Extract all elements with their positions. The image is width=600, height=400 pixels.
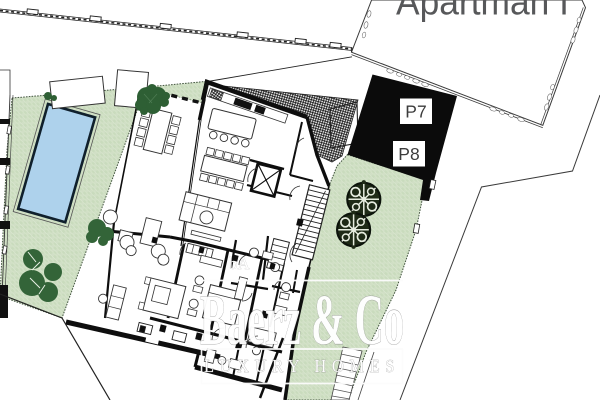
svg-text:P8: P8: [398, 144, 419, 164]
svg-text:bA: bA: [229, 254, 251, 273]
svg-text:P7: P7: [405, 102, 426, 122]
svg-text:Apartman I: Apartman I: [396, 0, 569, 23]
svg-text:Baerz & Co: Baerz & Co: [200, 280, 404, 360]
svg-text:LUXURY HOMES: LUXURY HOMES: [204, 356, 400, 376]
